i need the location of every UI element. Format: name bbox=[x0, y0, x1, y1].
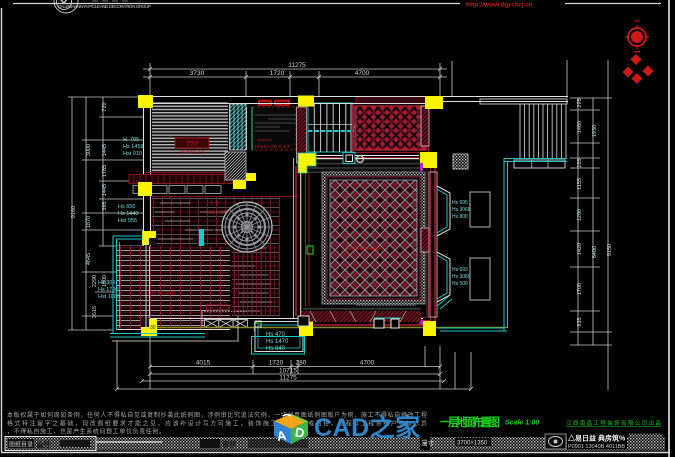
svg-text:4015: 4015 bbox=[196, 360, 211, 367]
svg-text:1155: 1155 bbox=[577, 178, 583, 190]
svg-text:1720: 1720 bbox=[270, 70, 285, 77]
svg-text:3515: 3515 bbox=[92, 306, 98, 318]
svg-text:Hs 470: Hs 470 bbox=[266, 332, 286, 338]
svg-text:395: 395 bbox=[102, 201, 108, 210]
svg-text:Hs 3080: Hs 3080 bbox=[452, 274, 471, 280]
svg-text:1785: 1785 bbox=[102, 165, 108, 177]
svg-text:SALEMANNNYN PCLEANE DECORATION: SALEMANNNYN PCLEANE DECORATION GROUP bbox=[58, 4, 151, 9]
svg-text:Hs 1440: Hs 1440 bbox=[118, 211, 139, 217]
svg-text:3000: 3000 bbox=[86, 144, 92, 156]
svg-text:P0901 13040B 4011BB: P0901 13040B 4011BB bbox=[568, 444, 625, 450]
svg-text:HHHHH?HHHH: HHHHH?HHHH bbox=[346, 247, 382, 253]
svg-text:1930: 1930 bbox=[592, 125, 598, 137]
svg-text:1445: 1445 bbox=[102, 184, 108, 196]
svg-text:H. 705: H. 705 bbox=[123, 137, 139, 143]
svg-text:1720: 1720 bbox=[269, 360, 284, 367]
svg-text:1700: 1700 bbox=[577, 283, 583, 295]
svg-text:??????: ?????? bbox=[257, 138, 273, 143]
svg-text:11275: 11275 bbox=[288, 62, 306, 69]
svg-text:30: 30 bbox=[150, 325, 156, 331]
svg-text:3730: 3730 bbox=[190, 70, 205, 77]
svg-text:Hs 1790: Hs 1790 bbox=[98, 287, 119, 293]
svg-text:9160: 9160 bbox=[71, 206, 77, 218]
svg-text:Hs 3068: Hs 3068 bbox=[452, 207, 471, 213]
svg-text:HHHH18/1B: HHHH18/1B bbox=[148, 291, 176, 297]
svg-text:CAD之家: CAD之家 bbox=[314, 413, 421, 442]
svg-text:? ?: ? ? bbox=[158, 284, 167, 290]
svg-text:265: 265 bbox=[577, 158, 583, 167]
svg-text:3700×1350: 3700×1350 bbox=[457, 441, 488, 447]
svg-text:???: ??? bbox=[186, 141, 198, 148]
svg-text:HHHH OR C.KT: HHHH OR C.KT bbox=[255, 144, 290, 150]
svg-text:漫寸: 漫寸 bbox=[421, 438, 435, 447]
svg-text:? ?: ? ? bbox=[210, 202, 219, 208]
svg-text:一层地面布置图: 一层地面布置图 bbox=[440, 415, 500, 429]
svg-text:1290: 1290 bbox=[577, 209, 583, 221]
svg-text:10715: 10715 bbox=[279, 368, 297, 375]
svg-text:Hs 695: Hs 695 bbox=[452, 200, 468, 206]
svg-text:设计: 设计 bbox=[36, 439, 51, 449]
svg-text:Hs 1459: Hs 1459 bbox=[123, 144, 144, 150]
svg-text:6400: 6400 bbox=[592, 246, 598, 258]
svg-text:720: 720 bbox=[102, 102, 108, 111]
svg-text:295: 295 bbox=[577, 98, 583, 107]
svg-text:Hs 693: Hs 693 bbox=[452, 267, 468, 273]
svg-text:http://www.dgrcbrj.cn: http://www.dgrcbrj.cn bbox=[466, 2, 533, 9]
svg-text:Hs 655: Hs 655 bbox=[118, 204, 135, 210]
svg-text:4645: 4645 bbox=[86, 253, 92, 265]
svg-text:△易日益 典房筑%: △易日益 典房筑% bbox=[567, 434, 626, 443]
svg-text:，不得私自施工，也是产生系统问题工单位负责任例。: ，不得私自施工，也是产生系统问题工单位负责任例。 bbox=[7, 428, 165, 436]
svg-text:Hs 800: Hs 800 bbox=[452, 214, 468, 220]
svg-text:Hs 500: Hs 500 bbox=[452, 281, 468, 287]
svg-text:11275: 11275 bbox=[279, 375, 297, 382]
svg-text:图纸目录: 图纸目录 bbox=[9, 441, 33, 449]
svg-text:HHHH1/1B: HHHH1/1B bbox=[180, 150, 205, 156]
svg-text:835: 835 bbox=[577, 317, 583, 326]
svg-text:Hs 840: Hs 840 bbox=[266, 346, 286, 352]
svg-text:Hs 1470: Hs 1470 bbox=[266, 339, 289, 345]
svg-text:280: 280 bbox=[296, 360, 307, 367]
svg-text:1420: 1420 bbox=[577, 243, 583, 255]
svg-text:1870: 1870 bbox=[86, 216, 92, 228]
svg-text:1460: 1460 bbox=[577, 121, 583, 133]
svg-text:Scale 1:00: Scale 1:00 bbox=[505, 420, 539, 427]
svg-text:Hst 955: Hst 955 bbox=[118, 218, 137, 224]
svg-text:9150: 9150 bbox=[607, 244, 613, 256]
svg-text:Hst 910: Hst 910 bbox=[123, 151, 142, 157]
svg-text:江西南昌工程装饰有限公司出品: 江西南昌工程装饰有限公司出品 bbox=[566, 419, 661, 427]
svg-text:4700: 4700 bbox=[360, 360, 375, 367]
svg-text:1445: 1445 bbox=[102, 144, 108, 156]
svg-text:4700: 4700 bbox=[355, 70, 370, 77]
svg-text:审核: 审核 bbox=[222, 439, 237, 449]
